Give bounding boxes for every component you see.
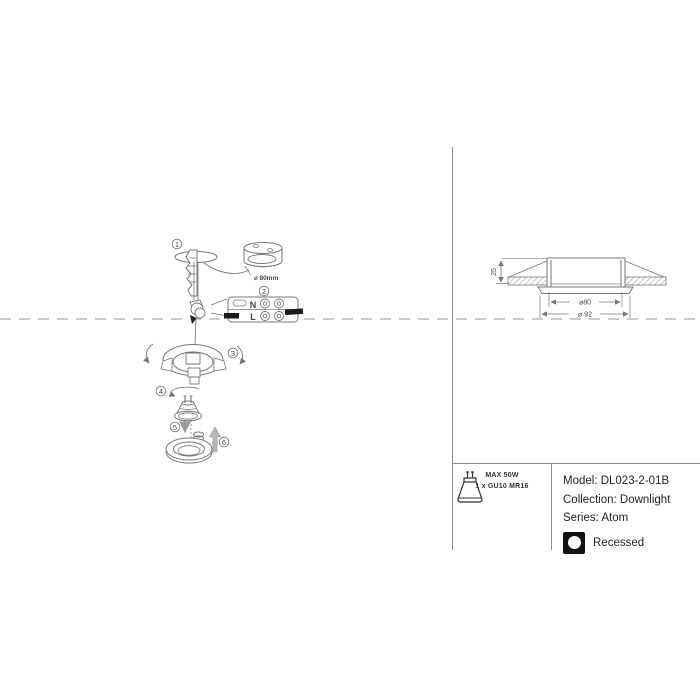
svg-text:2: 2 [262,287,266,296]
step3-housing-ring [146,344,243,384]
section-view: 25 ⌀80 ⌀ 92 [491,258,666,319]
saw-blade [186,250,197,296]
step4-twist-socket [171,387,199,403]
mains-cable-curve [204,263,249,274]
technical-drawing-layer: ⌀ 80mm N L [0,0,700,700]
dimension-cutout: ⌀80 [549,292,622,307]
svg-text:1: 1 [175,240,179,249]
hole-saw: ⌀ 80mm [244,243,282,283]
step-marker-2: 2 [259,286,269,296]
installation-diagram: ⌀ 80mm N L [146,239,303,463]
hole-saw-opening [248,255,276,264]
dimension-depth: 25 [491,261,509,284]
gu10-lamp [175,401,202,421]
socket-body [188,368,200,377]
model-spec-cell: Model: DL023-2-01B Collection: Downlight… [563,472,698,554]
lamp-pins [184,396,193,403]
collection-row: Collection: Downlight [563,491,698,510]
cutout-label: ⌀80 [579,300,591,307]
info-panel-cell-divider [551,463,552,550]
live-wire-left [224,313,239,319]
step-marker-4: 4 [156,386,166,396]
svg-text:3: 3 [231,349,235,358]
step-marker-6: 6 [219,437,229,447]
screw-hole [268,249,273,252]
series-row: Series: Atom [563,509,698,528]
twist-arrow [171,387,199,396]
svg-text:6: 6 [222,438,226,447]
step-markers: 1 2 3 4 5 6 [156,239,269,447]
depth-label: 25 [491,268,498,276]
trim-flange [538,287,633,294]
spring-diagonal-right [625,261,664,277]
datasheet-page: ⌀ 80mm N L [0,0,700,700]
recessed-mount-icon [563,532,585,554]
gu10-lamp-icon [453,470,487,506]
lamp-spec-cell: MAX 50W 1 x GU10 MR16 [453,470,551,492]
step-marker-5: 5 [170,422,180,432]
spring-diagonal-left [509,261,547,277]
ceiling-slab-right [625,277,666,285]
step-marker-1: 1 [172,239,182,249]
svg-text:4: 4 [159,387,163,396]
screw-hole [254,245,259,248]
cable-clamp [190,299,227,345]
label-leader [245,266,251,275]
rotate-arrow-left [146,344,153,363]
step2-terminal-block: N L [224,297,303,322]
ceiling-slab-left [508,277,547,285]
socket-connector [190,377,199,384]
info-panel-top-border [452,463,700,464]
spring-clip-right [214,358,226,371]
terminal-l-label: L [250,312,256,322]
trim-label: ⌀ 92 [578,312,592,319]
lamp-lens [179,413,198,419]
terminal-n-label: N [250,300,257,310]
svg-text:5: 5 [173,423,177,432]
step1-cut-hole [175,250,249,300]
model-row: Model: DL023-2-01B [563,472,698,491]
mounting-label: Recessed [593,537,644,549]
socket-block [186,353,200,364]
step6-trim-ring [166,427,221,463]
step-marker-3: 3 [228,348,238,358]
hole-diameter-label: ⌀ 80mm [254,275,279,282]
mounting-row: Recessed [563,532,698,554]
